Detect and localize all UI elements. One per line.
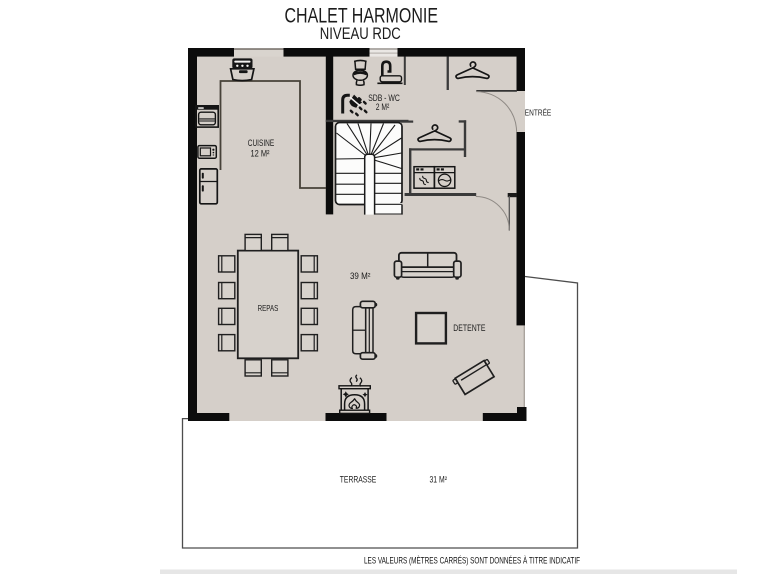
svg-text:12 M²: 12 M²	[251, 149, 270, 159]
svg-text:TERRASSE: TERRASSE	[340, 474, 377, 484]
svg-text:2 M²: 2 M²	[376, 102, 390, 112]
svg-text:NIVEAU RDC: NIVEAU RDC	[320, 25, 401, 43]
svg-text:DETENTE: DETENTE	[453, 323, 485, 333]
svg-text:39 M²: 39 M²	[350, 271, 371, 281]
svg-text:31 M²: 31 M²	[430, 474, 448, 484]
svg-text:CUISINE: CUISINE	[248, 138, 275, 148]
svg-text:ENTRÉE: ENTRÉE	[525, 108, 552, 118]
svg-text:LES VALEURS (MÈTRES CARRÉS) SO: LES VALEURS (MÈTRES CARRÉS) SONT DONNÉES…	[364, 556, 580, 566]
svg-text:REPAS: REPAS	[258, 303, 279, 313]
